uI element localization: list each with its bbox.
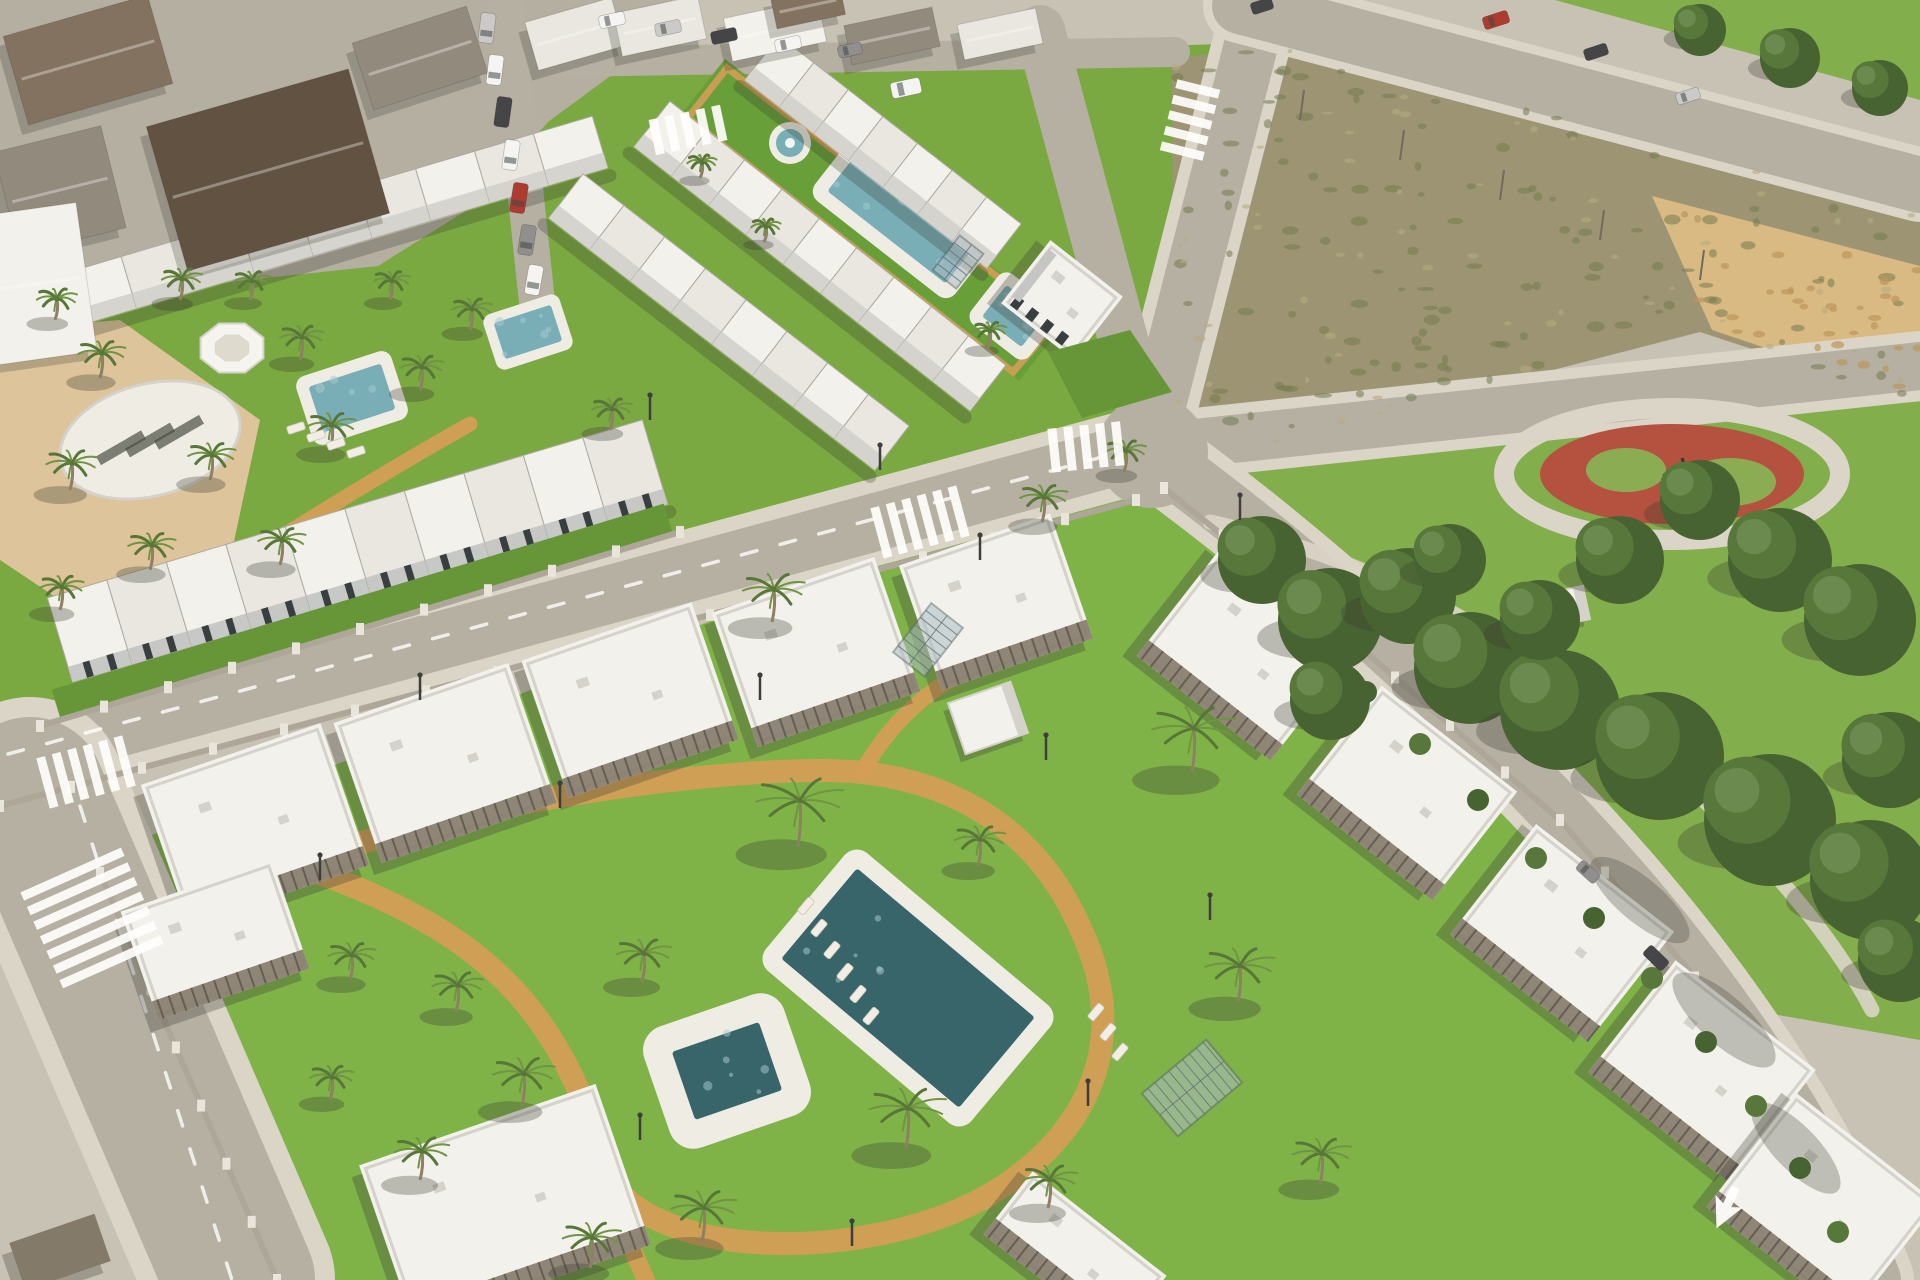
aerial-development-render: Aerial 3D architectural render of a whit… — [0, 0, 1920, 1280]
sunlight-overlay — [0, 0, 1920, 1280]
scene-root — [0, 0, 1920, 1280]
scene-svg: Aerial 3D architectural render of a whit… — [0, 0, 1920, 1280]
